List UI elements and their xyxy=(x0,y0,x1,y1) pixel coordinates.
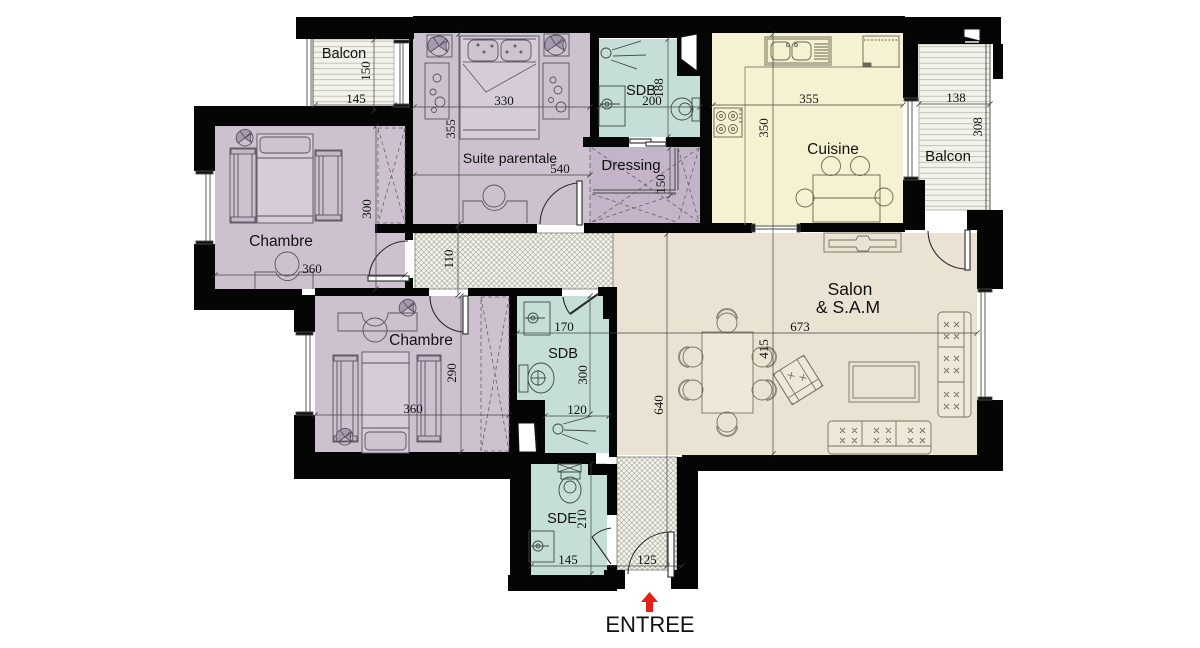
svg-text:170: 170 xyxy=(554,319,574,334)
svg-text:640: 640 xyxy=(651,395,666,415)
svg-text:350: 350 xyxy=(756,118,771,138)
svg-text:138: 138 xyxy=(946,90,966,105)
svg-text:360: 360 xyxy=(403,401,423,416)
svg-text:415: 415 xyxy=(756,339,771,359)
svg-text:Chambre: Chambre xyxy=(389,332,453,349)
svg-text:SDB: SDB xyxy=(548,346,578,362)
svg-text:150: 150 xyxy=(358,61,373,81)
svg-text:Balcon: Balcon xyxy=(322,46,366,62)
svg-text:300: 300 xyxy=(575,365,590,385)
svg-text:125: 125 xyxy=(637,552,657,567)
svg-text:SDB: SDB xyxy=(626,83,656,99)
svg-text:Balcon: Balcon xyxy=(925,148,971,165)
svg-text:145: 145 xyxy=(346,91,366,106)
svg-text:300: 300 xyxy=(359,199,374,219)
svg-text:ENTREE: ENTREE xyxy=(605,612,694,637)
svg-text:Dressing: Dressing xyxy=(601,157,660,174)
svg-text:330: 330 xyxy=(494,93,514,108)
svg-text:Salon: Salon xyxy=(828,279,873,299)
svg-text:110: 110 xyxy=(441,249,456,268)
svg-text:150: 150 xyxy=(653,174,668,194)
svg-text:355: 355 xyxy=(799,91,819,106)
svg-text:290: 290 xyxy=(444,363,459,383)
svg-text:673: 673 xyxy=(790,319,810,334)
svg-text:Chambre: Chambre xyxy=(249,233,313,250)
svg-text:SDE: SDE xyxy=(547,511,577,527)
svg-text:120: 120 xyxy=(567,402,587,417)
svg-text:& S.A.M: & S.A.M xyxy=(816,297,880,317)
svg-text:308: 308 xyxy=(970,117,985,137)
svg-text:145: 145 xyxy=(558,552,578,567)
svg-text:Suite parentale: Suite parentale xyxy=(463,150,557,166)
svg-text:355: 355 xyxy=(443,119,458,139)
svg-text:Cuisine: Cuisine xyxy=(807,141,859,158)
svg-text:360: 360 xyxy=(302,261,322,276)
